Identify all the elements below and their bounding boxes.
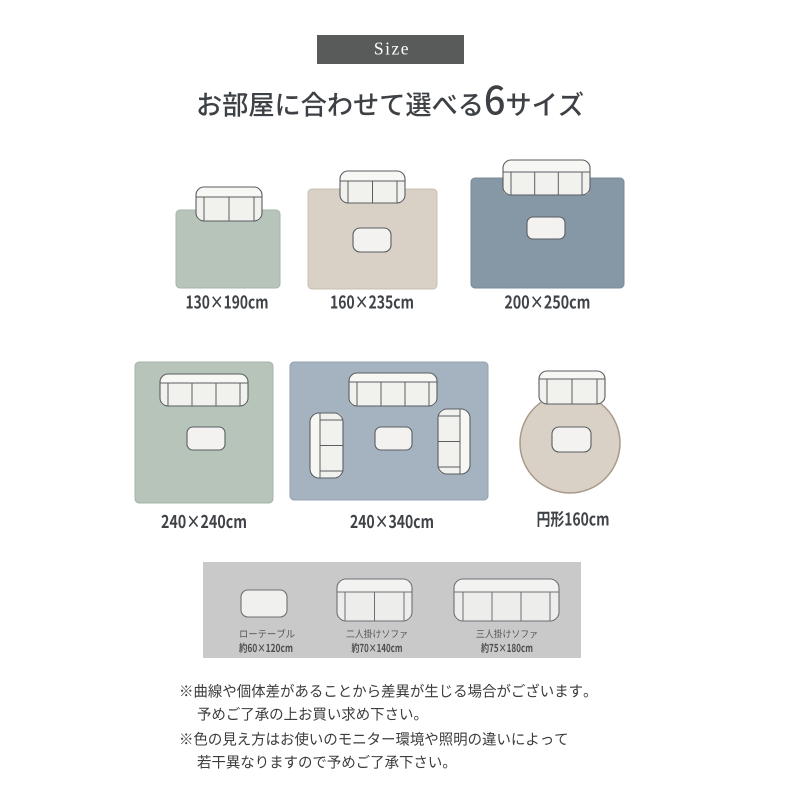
svg-text:Size: Size [374,39,410,59]
